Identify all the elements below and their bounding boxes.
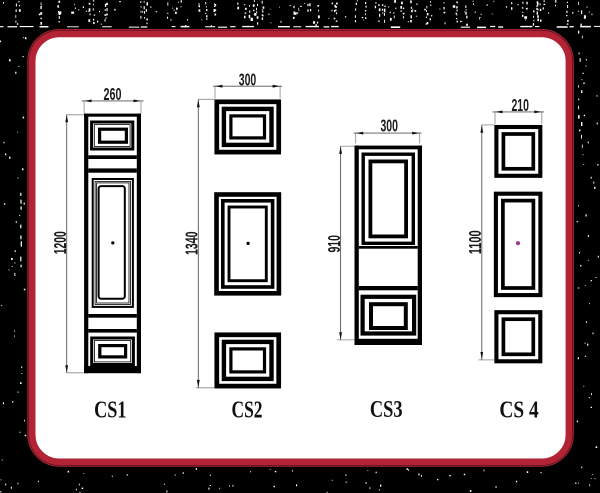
svg-text:1100: 1100 [465, 230, 485, 254]
svg-text:1340: 1340 [182, 231, 202, 255]
svg-text:CS 4: CS 4 [499, 397, 538, 423]
svg-text:300: 300 [239, 69, 257, 89]
svg-text:910: 910 [324, 235, 344, 253]
svg-text:1200: 1200 [50, 231, 70, 254]
svg-text:260: 260 [104, 84, 122, 104]
svg-text:CS1: CS1 [94, 397, 126, 423]
svg-text:CS3: CS3 [370, 397, 403, 423]
svg-text:CS2: CS2 [232, 397, 263, 423]
svg-text:210: 210 [511, 95, 529, 115]
svg-text:300: 300 [380, 115, 398, 135]
